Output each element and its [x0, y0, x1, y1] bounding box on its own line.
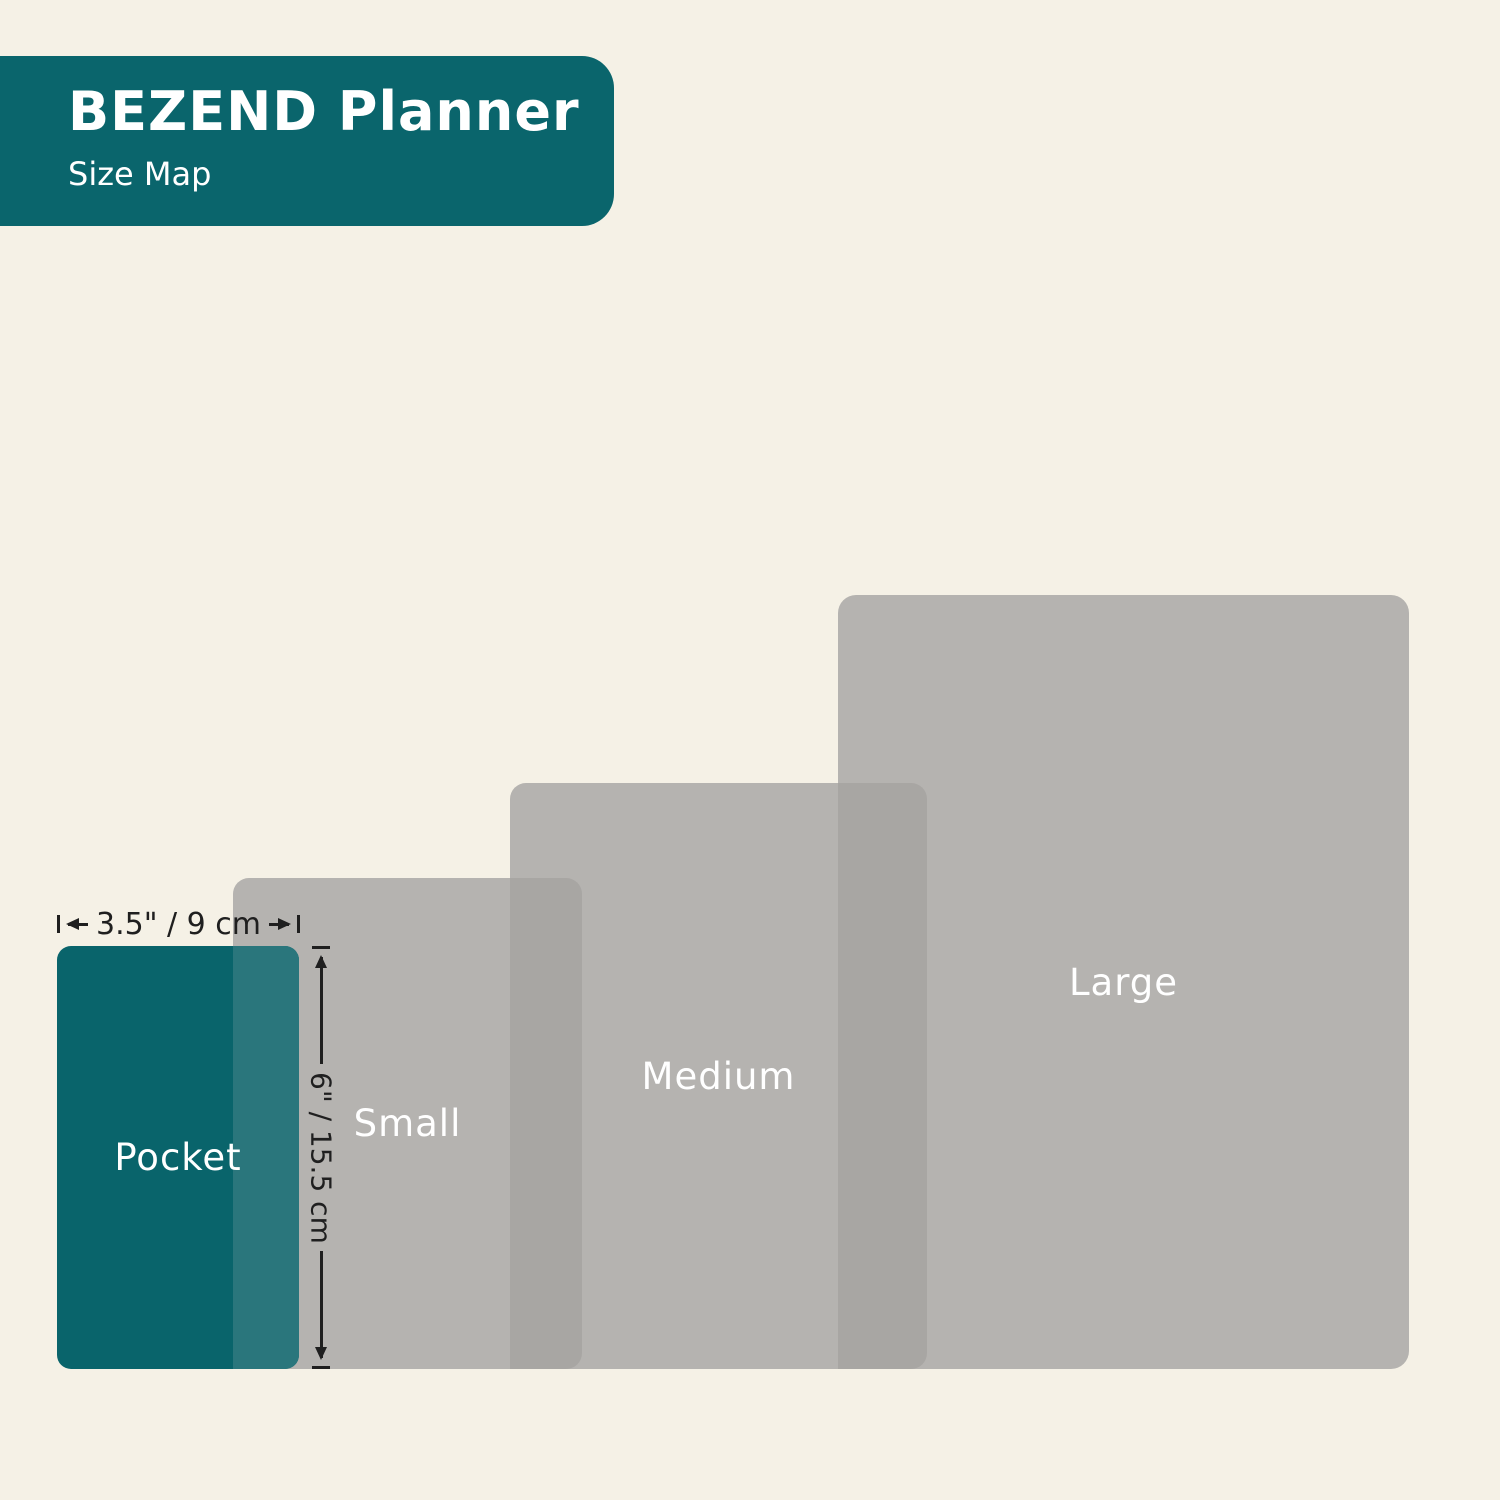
- arrow-down-icon: [320, 1251, 323, 1358]
- header-badge: BEZEND Planner Size Map: [0, 56, 614, 226]
- size-label-pocket: Pocket: [114, 1136, 241, 1179]
- size-map-canvas: BEZEND Planner Size Map Large Medium Sma…: [0, 0, 1500, 1500]
- arrow-right-icon: [269, 923, 289, 926]
- overlap-strip-small-medium: [510, 878, 582, 1369]
- width-dimension-label: 3.5" / 9 cm: [96, 907, 261, 942]
- page-subtitle: Size Map: [68, 155, 614, 193]
- size-rect-pocket: Pocket: [57, 946, 299, 1369]
- dimension-end-tick: [312, 1366, 330, 1369]
- dimension-end-tick: [297, 915, 300, 933]
- arrow-up-icon: [320, 957, 323, 1064]
- size-label-large: Large: [1069, 961, 1178, 1004]
- size-label-medium: Medium: [642, 1055, 796, 1098]
- height-dimension-label: 6" / 15.5 cm: [305, 1072, 338, 1244]
- height-dimension: 6" / 15.5 cm: [304, 946, 338, 1369]
- overlap-strip-pocket-small: [233, 946, 299, 1369]
- dimension-end-tick: [57, 915, 60, 933]
- brand-title: BEZEND Planner: [68, 82, 614, 141]
- dimension-end-tick: [312, 946, 330, 949]
- width-dimension: 3.5" / 9 cm: [57, 907, 300, 941]
- arrow-left-icon: [68, 923, 88, 926]
- size-label-small: Small: [354, 1102, 462, 1145]
- overlap-strip-medium-large: [838, 783, 927, 1369]
